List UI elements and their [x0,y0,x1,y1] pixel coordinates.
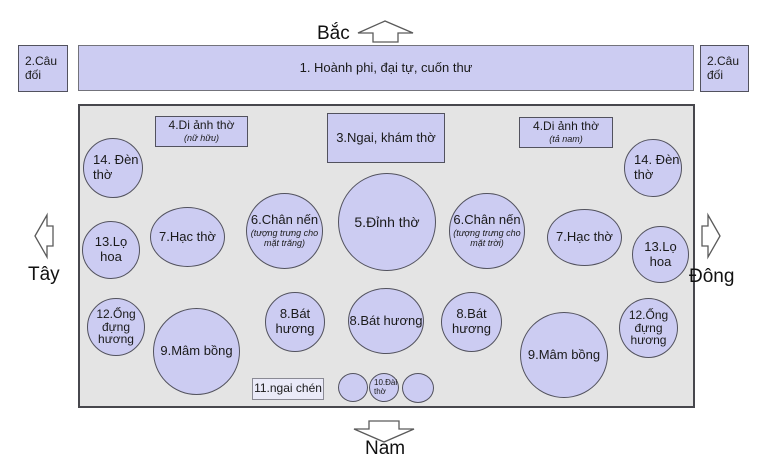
couplet-left-box: 2.Câu đối [18,45,68,92]
plain-circle-right [402,373,434,403]
north-arrow-icon [357,20,414,43]
plain-circle-left [338,373,368,402]
photo-right-box: 4.Di ảnh thờ (tả nam) [519,117,613,148]
crane-ellipse-left: 7.Hạc thờ [150,207,225,267]
east-label: Đông [689,266,734,288]
candle-right-label: 6.Chân nến [453,213,520,228]
incense-bowl-circle-right: 8.Bát hương [441,292,502,352]
banner-box: 1. Hoành phi, đại tự, cuốn thư [78,45,694,91]
censer-circle: 5.Đỉnh thờ [338,173,436,271]
fruit-tray-circle-right: 9.Mâm bồng [520,312,608,398]
incense-tube-circle-left: 12.Ống đựng hương [87,298,145,356]
couplet-right-box: 2.Câu đối [700,45,749,92]
south-label: Nam [365,438,405,460]
candle-circle-right: 6.Chân nến (tượng trưng cho mặt trời) [449,193,525,269]
lamp-circle-right: 14. Đèn thờ [624,139,682,197]
fruit-tray-circle-left: 9.Mâm bồng [153,308,240,395]
crane-ellipse-right: 7.Hạc thờ [547,209,622,266]
vase-circle-left: 13.Lọ hoa [82,221,140,279]
photo-right-sublabel: (tả nam) [549,134,583,144]
cup-tray-box: 11.ngai chén [252,378,324,400]
photo-left-box: 4.Di ảnh thờ (nữ hữu) [155,116,248,147]
photo-left-label: 4.Di ảnh thờ [169,119,235,133]
incense-tube-circle-right: 12.Ống đựng hương [619,298,678,358]
vase-circle-right: 13.Lọ hoa [632,226,689,283]
east-arrow-icon [701,210,721,263]
incense-bowl-circle-center: 8.Bát hương [348,288,424,354]
incense-bowl-circle-left: 8.Bát hương [265,292,325,352]
candle-left-label: 6.Chân nến [251,213,318,228]
west-arrow-icon [34,210,54,263]
photo-right-label: 4.Di ảnh thờ [533,120,599,134]
candle-left-sublabel: (tượng trưng cho mặt trăng) [251,228,318,249]
shrine-box: 3.Ngai, khám thờ [327,113,445,163]
lamp-circle-left: 14. Đèn thờ [83,138,143,198]
west-label: Tây [28,264,60,286]
altar-layout-diagram: Bắc 2.Câu đối 1. Hoành phi, đại tự, cuốn… [0,0,768,466]
water-stand-circle: 10.Đài thờ [369,373,399,402]
photo-left-sublabel: (nữ hữu) [184,133,219,143]
candle-right-sublabel: (tượng trưng cho mặt trời) [453,228,520,249]
north-label: Bắc [317,23,350,45]
candle-circle-left: 6.Chân nến (tượng trưng cho mặt trăng) [246,193,323,269]
